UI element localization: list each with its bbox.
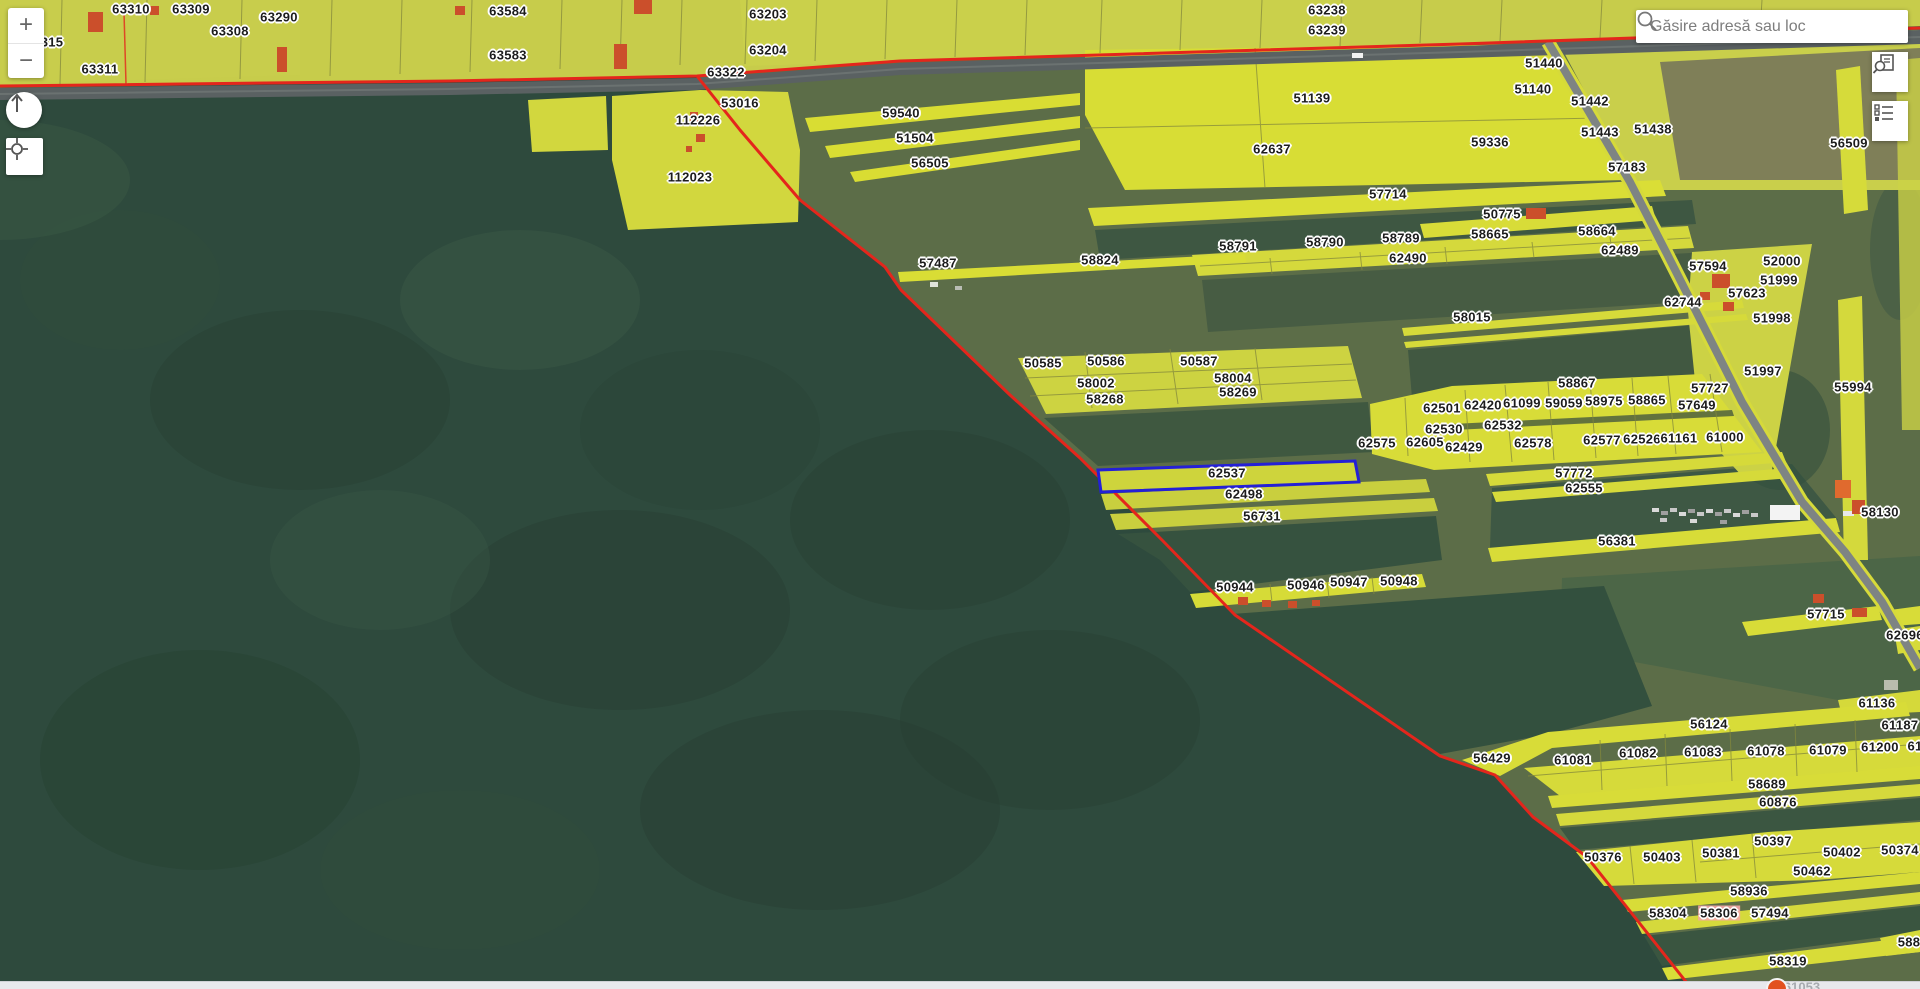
parcel-label[interactable]: 62490: [1389, 251, 1427, 266]
parcel-label[interactable]: 63204: [749, 43, 787, 58]
parcel-label[interactable]: 62577: [1583, 433, 1621, 448]
parcel-label[interactable]: 63583: [489, 48, 527, 63]
document-search-button[interactable]: [1872, 52, 1908, 92]
car-on-road: [1352, 53, 1363, 58]
parcel-label[interactable]: 51442: [1571, 94, 1609, 109]
parcel-label[interactable]: 588: [1898, 935, 1920, 950]
parcel-label[interactable]: 59540: [882, 106, 920, 121]
parcel-label[interactable]: 61079: [1809, 743, 1847, 758]
parcel-label[interactable]: 62744: [1664, 295, 1702, 310]
map-canvas[interactable]: [0, 0, 1920, 989]
parcel-label[interactable]: 58790: [1306, 235, 1344, 250]
parcel-label[interactable]: 51140: [1515, 82, 1552, 97]
magnifier-icon: [1636, 10, 1658, 32]
parcel-label[interactable]: 63203: [749, 7, 787, 22]
search-box: [1636, 10, 1908, 43]
parcel-label[interactable]: 58306: [1698, 906, 1740, 921]
parcel-label[interactable]: 62429: [1445, 440, 1483, 455]
parcel-label[interactable]: 62489: [1601, 243, 1639, 258]
parcel-label[interactable]: 58015: [1453, 310, 1491, 325]
parcel-label[interactable]: 315: [41, 35, 64, 50]
parcel-label[interactable]: 50462: [1793, 864, 1831, 879]
parcel-label[interactable]: 61081: [1554, 753, 1592, 768]
parcel-label[interactable]: 60876: [1759, 795, 1797, 810]
parcel-label[interactable]: 58269: [1219, 385, 1257, 400]
parcel-label[interactable]: 63584: [489, 4, 527, 19]
parcel-label[interactable]: 61000: [1706, 430, 1744, 445]
parcel-label[interactable]: 58319: [1769, 954, 1807, 969]
parcel-label[interactable]: 56124: [1690, 717, 1728, 732]
parcel-label[interactable]: 62555: [1565, 481, 1603, 496]
parcel-label[interactable]: 61083: [1684, 745, 1722, 760]
parcel-label[interactable]: 50376: [1584, 850, 1622, 865]
parcel-label[interactable]: 61187: [1882, 718, 1919, 733]
parcel-label[interactable]: 56505: [911, 156, 949, 171]
parcel-label[interactable]: 63239: [1308, 23, 1346, 38]
parcel-label[interactable]: 50374: [1881, 843, 1919, 858]
parcel-label[interactable]: 50948: [1380, 574, 1418, 589]
compass-button[interactable]: [6, 92, 42, 128]
parcel-label[interactable]: 112226: [676, 113, 720, 128]
parcel-label[interactable]: 50947: [1330, 575, 1368, 590]
parcel-label[interactable]: 58130: [1861, 505, 1899, 520]
parcel-label[interactable]: 50587: [1180, 354, 1218, 369]
parcel-label[interactable]: 57727: [1691, 381, 1729, 396]
parcel-label[interactable]: 57623: [1728, 286, 1766, 301]
parcel-label[interactable]: 63238: [1308, 3, 1346, 18]
parcel-label[interactable]: 61099: [1503, 396, 1541, 411]
parcel-label[interactable]: 56509: [1830, 136, 1868, 151]
parcel-label[interactable]: 50585: [1024, 356, 1062, 371]
parcel-label[interactable]: 58689: [1748, 777, 1786, 792]
legend-list-icon: [1872, 101, 1896, 125]
parcel-label[interactable]: 50402: [1823, 845, 1861, 860]
parcel-label[interactable]: 57594: [1689, 259, 1727, 274]
zoom-control: + −: [8, 8, 44, 78]
locate-button[interactable]: [6, 138, 43, 175]
parcel-label: 61053: [1784, 980, 1820, 989]
parcel-label[interactable]: 51440: [1525, 56, 1563, 71]
parcel-label[interactable]: 50946: [1287, 578, 1325, 593]
zoom-in-button[interactable]: +: [8, 8, 44, 44]
parcel-label[interactable]: 51139: [1294, 91, 1331, 106]
parcel-label[interactable]: 62498: [1225, 487, 1263, 502]
parcel-label[interactable]: 58791: [1219, 239, 1257, 254]
crosshair-icon: [6, 138, 28, 160]
parcel-label[interactable]: 62637: [1253, 142, 1291, 157]
parcel-label[interactable]: 61082: [1619, 746, 1657, 761]
parcel-label[interactable]: 52000: [1763, 254, 1801, 269]
parcel-label[interactable]: 58664: [1578, 224, 1616, 239]
parcel-label[interactable]: 50403: [1643, 850, 1681, 865]
document-search-icon: [1872, 52, 1896, 76]
legend-list-button[interactable]: [1872, 101, 1908, 141]
parcel-label[interactable]: 62696: [1886, 628, 1920, 643]
parcel-label[interactable]: 51504: [896, 131, 934, 146]
parcel-label[interactable]: 58824: [1081, 253, 1119, 268]
parcel-label[interactable]: 58304: [1649, 906, 1687, 921]
parcel-label[interactable]: 53016: [721, 96, 759, 111]
north-arrow-icon: [6, 92, 28, 114]
parcel-label[interactable]: 63322: [707, 65, 745, 80]
parcel-label[interactable]: 57649: [1678, 398, 1716, 413]
parcel-label[interactable]: 62532: [1484, 418, 1522, 433]
parcel-label[interactable]: 62420: [1464, 398, 1502, 413]
parcel-label[interactable]: 63310: [112, 2, 150, 17]
parcel-label[interactable]: 61136: [1859, 696, 1896, 711]
parcel-label[interactable]: 58002: [1077, 376, 1115, 391]
parcel-label[interactable]: 56381: [1598, 534, 1636, 549]
parcel-label[interactable]: 51998: [1753, 311, 1791, 326]
parcel-label[interactable]: 63311: [82, 62, 119, 77]
parcel-label[interactable]: 62578: [1514, 436, 1552, 451]
parcel-label[interactable]: 58867: [1558, 376, 1596, 391]
parcel-label[interactable]: 57714: [1369, 187, 1407, 202]
parcel-label[interactable]: 63309: [172, 2, 210, 17]
parcel-label[interactable]: 50586: [1087, 354, 1125, 369]
parcel-label[interactable]: 62605: [1406, 435, 1444, 450]
search-input[interactable]: [1648, 17, 1866, 37]
parcel-label[interactable]: 61161: [1661, 431, 1698, 446]
parcel-label[interactable]: 58975: [1585, 394, 1623, 409]
parcel-label[interactable]: 61: [1907, 739, 1920, 754]
parcel-label[interactable]: 63290: [260, 10, 298, 25]
parcel-label[interactable]: 57772: [1555, 466, 1593, 481]
parcel-label[interactable]: 62501: [1423, 401, 1461, 416]
parcel-label[interactable]: 58865: [1628, 393, 1666, 408]
parcel-label[interactable]: 57715: [1807, 607, 1845, 622]
parcel-label[interactable]: 58665: [1471, 227, 1509, 242]
parcel-label[interactable]: 50944: [1216, 580, 1254, 595]
parcel-label[interactable]: 51997: [1744, 364, 1782, 379]
parcel-label[interactable]: 63308: [211, 24, 249, 39]
parcel-label[interactable]: 58936: [1730, 884, 1768, 899]
map-viewport[interactable]: 3156331063309633086329063311635846358363…: [0, 0, 1920, 989]
parcel-label[interactable]: 59059: [1545, 396, 1583, 411]
parcel-label[interactable]: 57487: [919, 256, 957, 271]
parcel-label[interactable]: 51443: [1581, 125, 1619, 140]
parcel-label[interactable]: 55994: [1834, 380, 1872, 395]
parcel-label[interactable]: 50381: [1702, 846, 1740, 861]
parcel-label[interactable]: 57494: [1751, 906, 1789, 921]
parcel-label[interactable]: 62537: [1208, 466, 1246, 481]
parcel-label[interactable]: 58268: [1086, 392, 1124, 407]
parcel-label[interactable]: 61200: [1861, 740, 1899, 755]
parcel-label[interactable]: 112023: [668, 170, 712, 185]
parcel-label[interactable]: 57183: [1608, 160, 1646, 175]
parcel-label[interactable]: 56731: [1243, 509, 1281, 524]
parcel-label[interactable]: 59336: [1471, 135, 1509, 150]
parcel-label[interactable]: 56429: [1473, 751, 1511, 766]
parcel-label[interactable]: 58004: [1214, 371, 1252, 386]
bottom-bar: [0, 981, 1920, 989]
parcel-label[interactable]: 50397: [1754, 834, 1792, 849]
parcel-label[interactable]: 62575: [1358, 436, 1396, 451]
parcel-label[interactable]: 61078: [1747, 744, 1785, 759]
parcel-label[interactable]: 50775: [1483, 207, 1521, 222]
parcel-label[interactable]: 62526: [1623, 432, 1661, 447]
zoom-out-button[interactable]: −: [8, 44, 44, 79]
parcel-label[interactable]: 51438: [1634, 122, 1672, 137]
parcel-label[interactable]: 58789: [1382, 231, 1420, 246]
